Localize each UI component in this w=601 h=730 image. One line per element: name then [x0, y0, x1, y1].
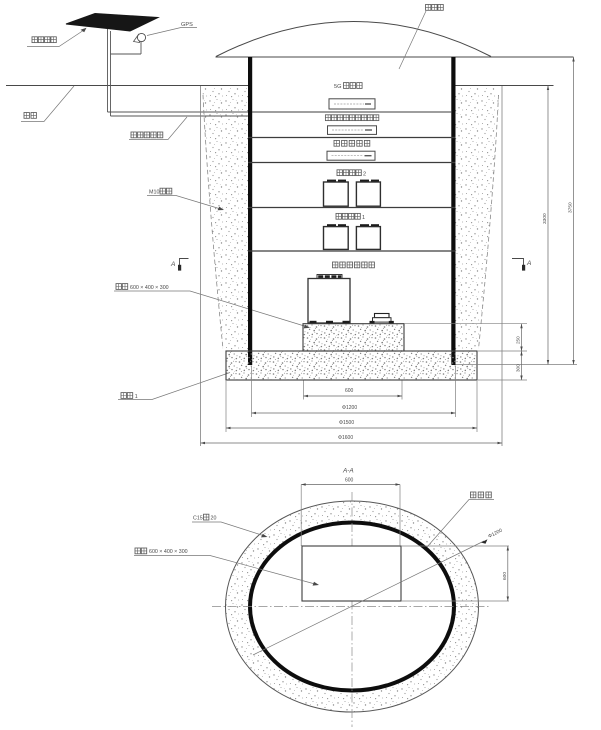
svg-text:1: 1 [135, 394, 138, 400]
svg-text:M10: M10 [149, 190, 160, 196]
svg-text:Φ1500: Φ1500 [339, 420, 354, 426]
svg-text:300: 300 [516, 364, 521, 372]
svg-text:600: 600 [502, 572, 508, 580]
svg-text:250: 250 [516, 336, 521, 344]
svg-text:600: 600 [345, 478, 354, 484]
svg-text:3300: 3300 [542, 213, 548, 224]
svg-text:3750: 3750 [568, 202, 574, 213]
svg-text:600 × 400 × 300: 600 × 400 × 300 [149, 549, 188, 555]
svg-text:600: 600 [345, 388, 354, 394]
svg-text:20: 20 [211, 516, 217, 522]
svg-text:C15: C15 [193, 516, 203, 522]
svg-text:600 × 400 × 300: 600 × 400 × 300 [130, 285, 169, 291]
svg-text:A-A: A-A [342, 468, 354, 475]
svg-text:Φ1600: Φ1600 [338, 435, 353, 441]
svg-text:Φ1200: Φ1200 [342, 405, 357, 411]
svg-text:5G: 5G [334, 84, 341, 90]
svg-text:GPS: GPS [181, 22, 193, 28]
svg-text:1: 1 [362, 215, 365, 221]
svg-text:A: A [170, 261, 175, 268]
svg-text:A: A [526, 260, 531, 267]
svg-text:2: 2 [363, 172, 366, 178]
